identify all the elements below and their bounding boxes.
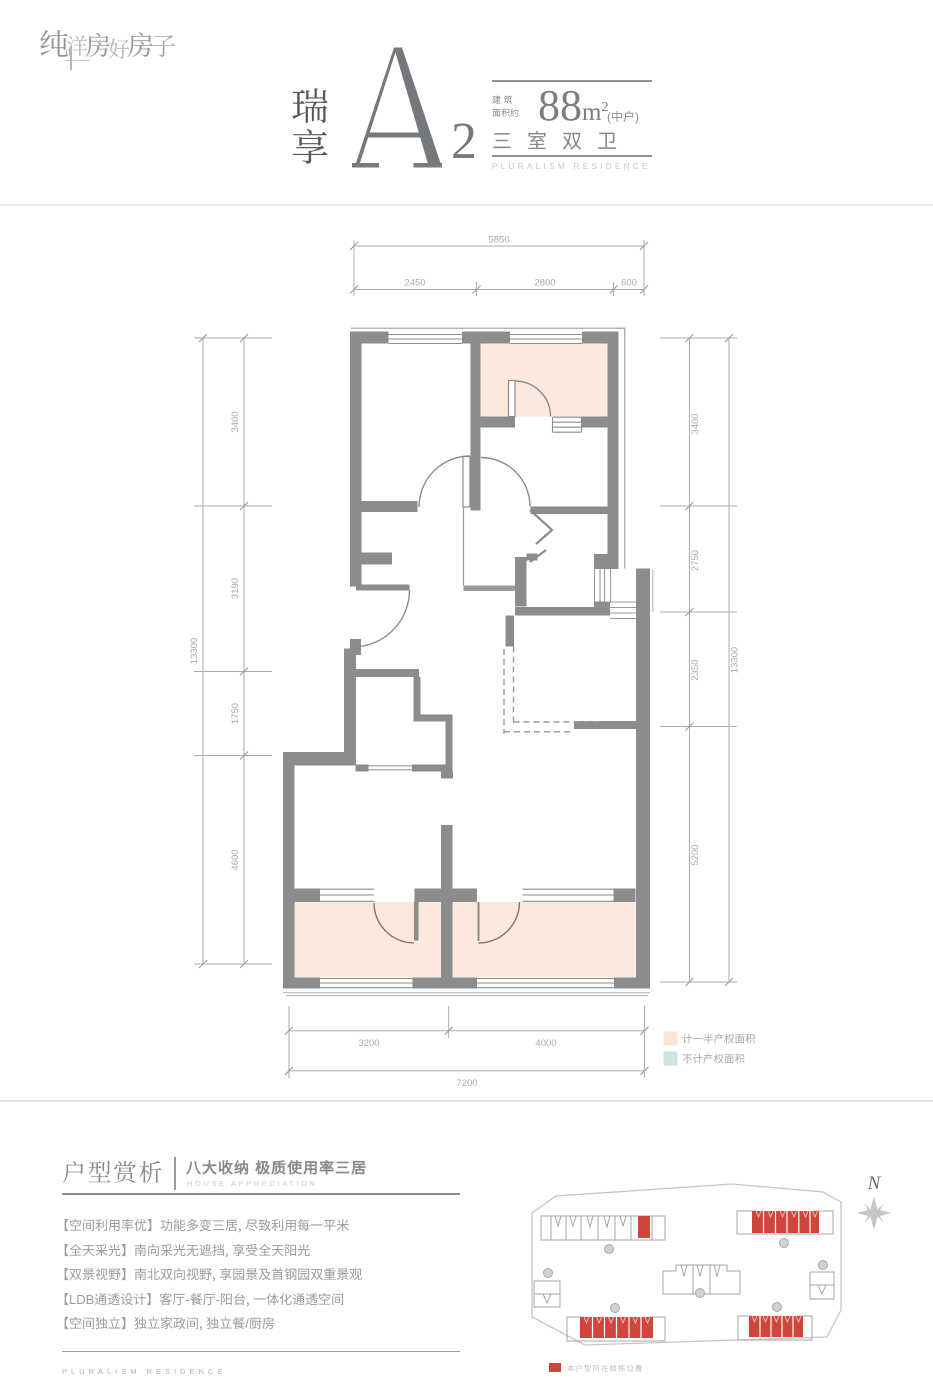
svg-text:N: N [867,1173,882,1194]
svg-text:本户型所在楼栋位置: 本户型所在楼栋位置 [567,1363,644,1374]
